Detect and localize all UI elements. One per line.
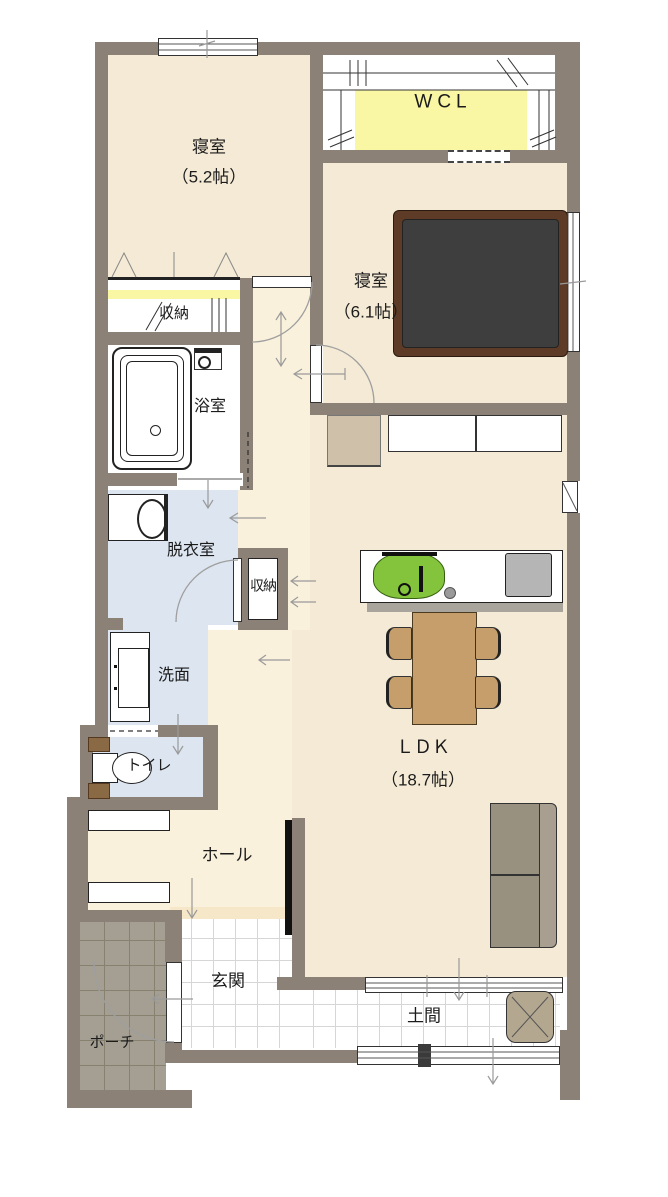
vanity	[110, 632, 150, 722]
chair	[386, 627, 412, 660]
window-small-east	[562, 481, 578, 513]
sofa-seat-bottom	[490, 875, 540, 948]
vanity-knob	[114, 687, 117, 690]
wall-closet1-south	[95, 332, 253, 345]
label-wcl: WCL	[414, 93, 471, 114]
sink-faucet	[419, 566, 423, 592]
floor-corridor	[253, 278, 310, 490]
wall-entrance-south	[168, 1050, 360, 1063]
label-doma: 土間	[407, 1008, 441, 1027]
bathtub-inner	[126, 361, 178, 456]
closet1-mat	[108, 290, 240, 299]
floor-hall-a	[238, 490, 310, 548]
wall-bedroom2-south	[310, 403, 567, 415]
wall-right-mid	[567, 352, 580, 481]
shoe-cabinet-top	[88, 810, 170, 831]
wall-bedroom1-east	[310, 42, 323, 345]
floor-porch-tile	[80, 922, 166, 1090]
label-dressing-room: 脱衣室	[167, 542, 215, 560]
chair	[386, 676, 412, 709]
label-washroom: 洗面	[158, 667, 190, 685]
wall-closet2-north	[238, 548, 288, 558]
wall-hall-ldk	[292, 818, 305, 990]
wall-porch-west	[67, 910, 80, 1108]
sink-drain	[398, 583, 411, 596]
chair	[475, 627, 501, 660]
bathroom-sliding-door	[177, 473, 243, 486]
tv	[285, 820, 292, 935]
wall-closet2-south	[238, 620, 288, 630]
label-ldk-size: （18.7帖）	[381, 772, 465, 791]
label-bedroom1-size: （5.2帖）	[172, 169, 247, 188]
bed-mattress	[402, 219, 559, 348]
washing-machine-door	[137, 499, 167, 539]
wall-porch-south	[67, 1090, 192, 1108]
floor-plan: 寝室 （5.2帖） WCL 寝室 （6.1帖） 収納 浴室 脱衣室 収納 洗面 …	[0, 0, 668, 1197]
label-closet1: 収納	[159, 306, 189, 323]
wall-wcl-east	[555, 55, 567, 152]
wall-right-bottom-pillar	[560, 1030, 580, 1100]
window-bedroom1-top	[158, 38, 258, 56]
dining-table	[412, 612, 477, 725]
door-leaf-bedroom1	[252, 276, 312, 288]
label-bedroom1: 寝室	[192, 139, 226, 158]
washing-machine	[108, 494, 168, 541]
label-bathroom: 浴室	[194, 398, 226, 416]
door-leaf-bedroom2	[310, 345, 322, 403]
shower-head-icon	[198, 356, 211, 369]
label-ldk: ＬＤＫ	[396, 738, 450, 758]
door-leaf-dressing	[233, 558, 242, 622]
counter-stool	[444, 587, 456, 599]
label-entrance: 玄関	[211, 973, 245, 992]
entrance-step	[170, 907, 292, 919]
wall-closet2-east	[278, 558, 288, 620]
doma-door-post	[418, 1044, 431, 1067]
wall-right-upper	[567, 55, 580, 212]
label-toilet: トイレ	[126, 758, 171, 775]
vanity-knob	[114, 665, 117, 668]
wall-wcl-south	[323, 150, 567, 163]
wall-right-lower	[567, 513, 580, 1030]
wall-ldk-south	[277, 977, 365, 990]
floor-hall-d	[218, 725, 292, 810]
armchair	[506, 991, 554, 1043]
cabinet-right	[476, 415, 562, 452]
floor-hall-b	[288, 548, 310, 630]
sink-faucet-bar	[382, 552, 437, 556]
label-bedroom2: 寝室	[354, 273, 388, 292]
label-bedroom2-size: （6.1帖）	[334, 304, 409, 323]
cabinet-left	[388, 415, 476, 452]
bathtub-drain	[150, 425, 161, 436]
chair	[475, 676, 501, 709]
toilet-sliding-door	[108, 725, 158, 737]
label-closet2: 収納	[250, 578, 276, 593]
vanity-basin	[118, 648, 149, 708]
toilet-shelf-top	[88, 737, 110, 752]
shoe-cabinet-bottom	[88, 882, 170, 903]
label-porch: ポーチ	[89, 1035, 134, 1052]
counter-edge	[367, 603, 563, 612]
door-leaf-front	[166, 962, 182, 1043]
wall-frontdoor-top-stub	[165, 910, 182, 962]
wall-hall-west	[67, 810, 88, 910]
sliding-door-doma-south	[357, 1046, 560, 1065]
sofa-back	[538, 803, 557, 948]
wall-porch-north	[67, 910, 170, 922]
wall-dressing-stub	[95, 618, 123, 630]
sofa-seat-top	[490, 803, 540, 875]
desk	[327, 415, 381, 467]
floor-hall-c	[208, 630, 292, 725]
wall-bathroom-east	[240, 345, 253, 490]
stove	[505, 553, 552, 597]
bed	[393, 210, 568, 357]
wcl-opening	[448, 150, 510, 163]
label-hall: ホール	[202, 847, 253, 866]
bathtub	[112, 347, 192, 470]
toilet-shelf-bottom	[88, 783, 110, 799]
